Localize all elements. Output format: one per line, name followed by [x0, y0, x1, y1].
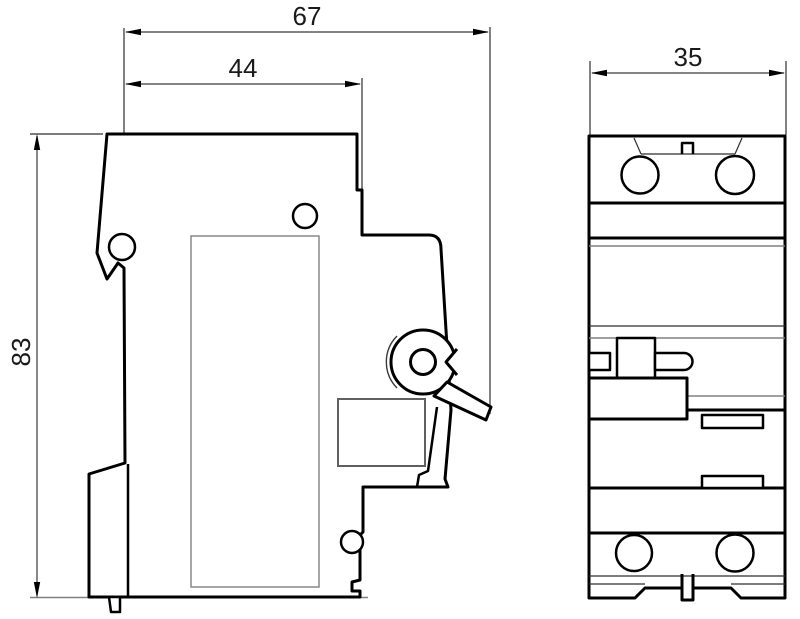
drawing-canvas: 67 44 83 35	[0, 0, 800, 619]
technical-drawing: 67 44 83 35	[0, 0, 800, 619]
rivet-hole-bottom	[341, 531, 363, 553]
arrowhead-right	[345, 81, 361, 87]
dimension-value: 35	[674, 42, 703, 72]
dimension-value: 44	[229, 53, 258, 83]
arrowhead-left	[125, 81, 141, 87]
arrowhead-up	[34, 134, 40, 150]
dimension-value: 67	[293, 1, 322, 31]
arrowhead-right	[473, 29, 489, 35]
detail-rect-lower	[702, 476, 763, 488]
toggle-handle	[589, 378, 687, 419]
arrowhead-right	[769, 70, 785, 76]
toggle-tab-left	[589, 353, 610, 370]
small-label-area	[338, 399, 425, 466]
arrowhead-down	[34, 582, 40, 598]
dimension-body-depth-44: 44	[125, 53, 361, 87]
front-view	[589, 61, 786, 600]
dimension-value: 83	[6, 338, 36, 367]
arrowhead-left	[591, 70, 607, 76]
dimension-width-35: 35	[591, 42, 785, 76]
arrowhead-left	[125, 29, 141, 35]
detail-rect-upper	[702, 415, 763, 428]
toggle-knob-center	[411, 350, 436, 375]
side-view	[30, 27, 491, 612]
mounting-foot	[109, 597, 120, 612]
toggle-tab-right	[655, 353, 693, 370]
dimension-overall-depth-67: 67	[125, 1, 489, 35]
toggle-base	[617, 338, 655, 378]
